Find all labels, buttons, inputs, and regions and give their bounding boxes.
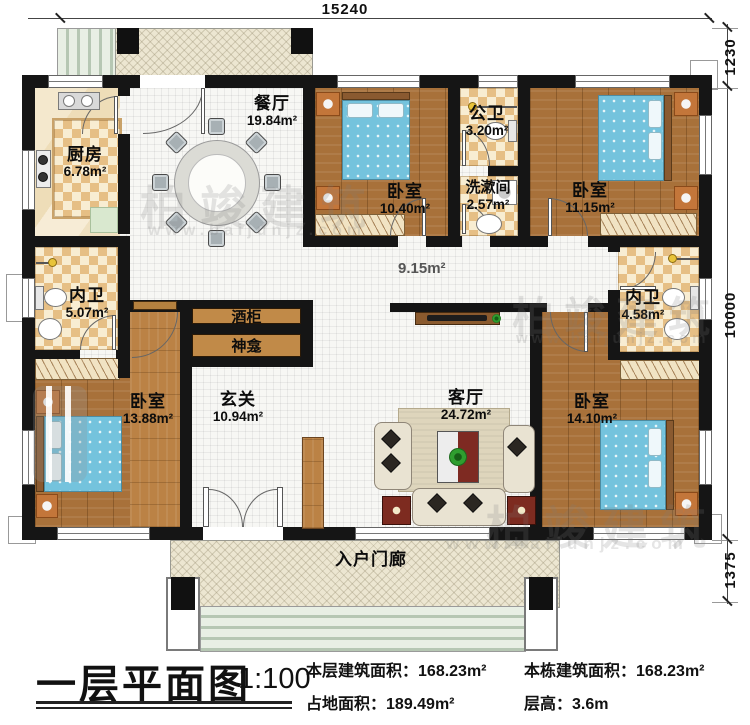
shower-arm [677,258,699,260]
bed-pillow [648,460,662,488]
wall-corridor-top [426,236,462,247]
kitchen-sink-bowl [63,95,75,107]
room-label-washroom: 洗漱间 2.57m² [450,180,526,212]
porch-column [529,577,553,610]
nightstand [36,494,58,518]
sink-icon [38,318,62,340]
wall-kitchen-bath [22,236,130,247]
shower-icon [48,258,57,267]
room-label-foyer: 玄关 10.94m² [198,390,278,424]
wall-corridor-top [303,236,398,247]
window-kitchen-top [48,75,103,88]
window-bedroom-topright-side [699,115,712,175]
room-label-ensuite-right: 内卫 4.58m² [608,288,678,322]
terrace [115,28,313,77]
nightstand [674,186,698,210]
door-leaf-bedroom-left [133,301,177,310]
door-leaf-ensuite-left [112,315,116,350]
plan-stats: 本层建筑面积：168.23m² 本栋建筑面积：168.23m² 占地面积：189… [306,657,748,714]
nightstand [316,92,340,116]
shower-icon [668,254,677,263]
dining-table-top [188,154,246,212]
window-ensuite-left [22,278,35,318]
bed-pillow [48,453,62,481]
bed-headboard [36,416,44,492]
stat-land-area: 占地面积：189.49m² [306,690,518,714]
window-bedroom-right-side [699,430,712,485]
side-table [507,496,536,525]
sofa-right [503,425,535,493]
stat-floor-area: 本层建筑面积：168.23m² [306,657,518,681]
wardrobe-bedroom-left [35,358,120,380]
porch-column [171,577,195,610]
dim-line-top [28,18,712,19]
window-bedroom-right-bottom [593,527,685,540]
dining-chair [208,230,225,247]
entrance-door-leaf [203,487,209,527]
entry-steps-top [57,28,117,77]
wardrobe-bedroom-right [620,360,701,380]
room-label-bedroom-top-mid: 卧室 10.40m² [365,182,445,216]
window-bedroom-left-bottom [57,527,150,540]
room-label-bedroom-left: 卧室 13.88m² [108,392,188,426]
title-underline [36,701,292,704]
room-label-dining: 餐厅 19.84m² [232,94,312,128]
title-underline [36,707,292,709]
stat-building-area: 本栋建筑面积：168.23m² [524,657,748,681]
foyer-partition [302,437,324,529]
room-label-bedroom-top-right: 卧室 11.15m² [550,181,630,215]
sofa-bottom [412,488,506,526]
window-bedroom-left-side [22,430,35,485]
wine-cabinet-label: 酒柜 [231,306,261,327]
bed-pillow [648,132,662,160]
wall-corridor-top [588,236,699,247]
shrine-cabinet: 神龛 [192,334,301,357]
dim-right-top-label: 1230 [722,27,738,87]
bed-headboard [664,95,672,181]
kitchen-sink-bowl [81,95,93,107]
dim-right-mid-label: 10000 [722,285,738,345]
bed-pillow [648,428,662,456]
dim-ext [712,88,738,89]
wall-tv [390,303,547,312]
door-leaf-dining [201,88,205,134]
nightstand [36,390,60,414]
bed-pillow [48,421,62,449]
window-bedroom-top-mid [337,75,420,88]
window-living-bottom [355,527,490,540]
sink-icon [476,214,502,234]
room-label-living: 客厅 24.72m² [426,388,506,422]
bed-pillow [378,103,404,118]
wall-cabinet-bottom [192,357,313,367]
wardrobe-bedroom-top-right [600,213,697,236]
plan-scale: 1:100 [238,663,311,696]
room-label-ensuite-left: 内卫 5.07m² [52,286,122,320]
door-leaf-bedroom-right [584,312,588,352]
nightstand [675,492,698,516]
wall-ensuiteright-left [608,247,620,252]
bed-headboard [342,92,410,100]
wall-ensuiteleft-bottom [22,350,80,359]
floor-plan-canvas: 15240 1230 10000 1375 [0,0,750,725]
bed-pillow [347,103,373,118]
kitchen-counter [90,207,118,233]
terrace-column [117,28,139,54]
dim-top-label: 15240 [305,1,385,18]
window-ensuite-right [699,278,712,320]
dim-right-bottom-label: 1375 [722,540,738,600]
door-opening-dining [140,75,205,88]
tv-icon [427,315,487,321]
nightstand [674,92,698,116]
wine-cabinet: 酒柜 [192,308,301,324]
wall-kitchen-dining [118,88,130,96]
dining-chair [264,174,281,191]
wall-ensuiteleft-bottom [116,350,130,359]
entrance-door-opening [203,527,283,540]
plant-icon [449,448,467,466]
wall-bath-divider [488,166,518,176]
entry-steps-bottom [200,606,526,652]
bed-pillow [648,100,662,128]
shrine-cabinet-label: 神龛 [231,335,261,356]
porch-label: 入户门廊 [306,550,436,569]
side-table [382,496,411,525]
terrace-column [291,28,313,54]
nightstand [316,186,340,210]
door-leaf-kitchen [114,96,118,134]
room-label-kitchen: 厨房 6.78m² [45,145,125,179]
window-kitchen-left [22,150,35,210]
wall-ensuiteright-bottom [608,352,699,360]
room-label-public-bath: 公卫 3.20m² [452,104,522,138]
wall-bedroomright-left [530,312,542,527]
plant-icon [492,314,501,323]
bed-headboard [666,420,674,510]
entrance-door-leaf [277,487,283,527]
toilet-tank [690,286,699,310]
window-bedroom-top-right [575,75,670,88]
dim-ext [712,602,738,603]
window-public-bath [478,75,518,88]
corridor-area-label: 9.15m² [398,260,468,277]
wall-corridor-top [490,236,548,247]
toilet-tank [35,286,44,310]
stat-floor-height: 层高：3.6m [524,690,748,714]
room-label-bedroom-right: 卧室 14.10m² [552,392,632,426]
dining-chair [208,118,225,135]
dining-chair [152,174,169,191]
